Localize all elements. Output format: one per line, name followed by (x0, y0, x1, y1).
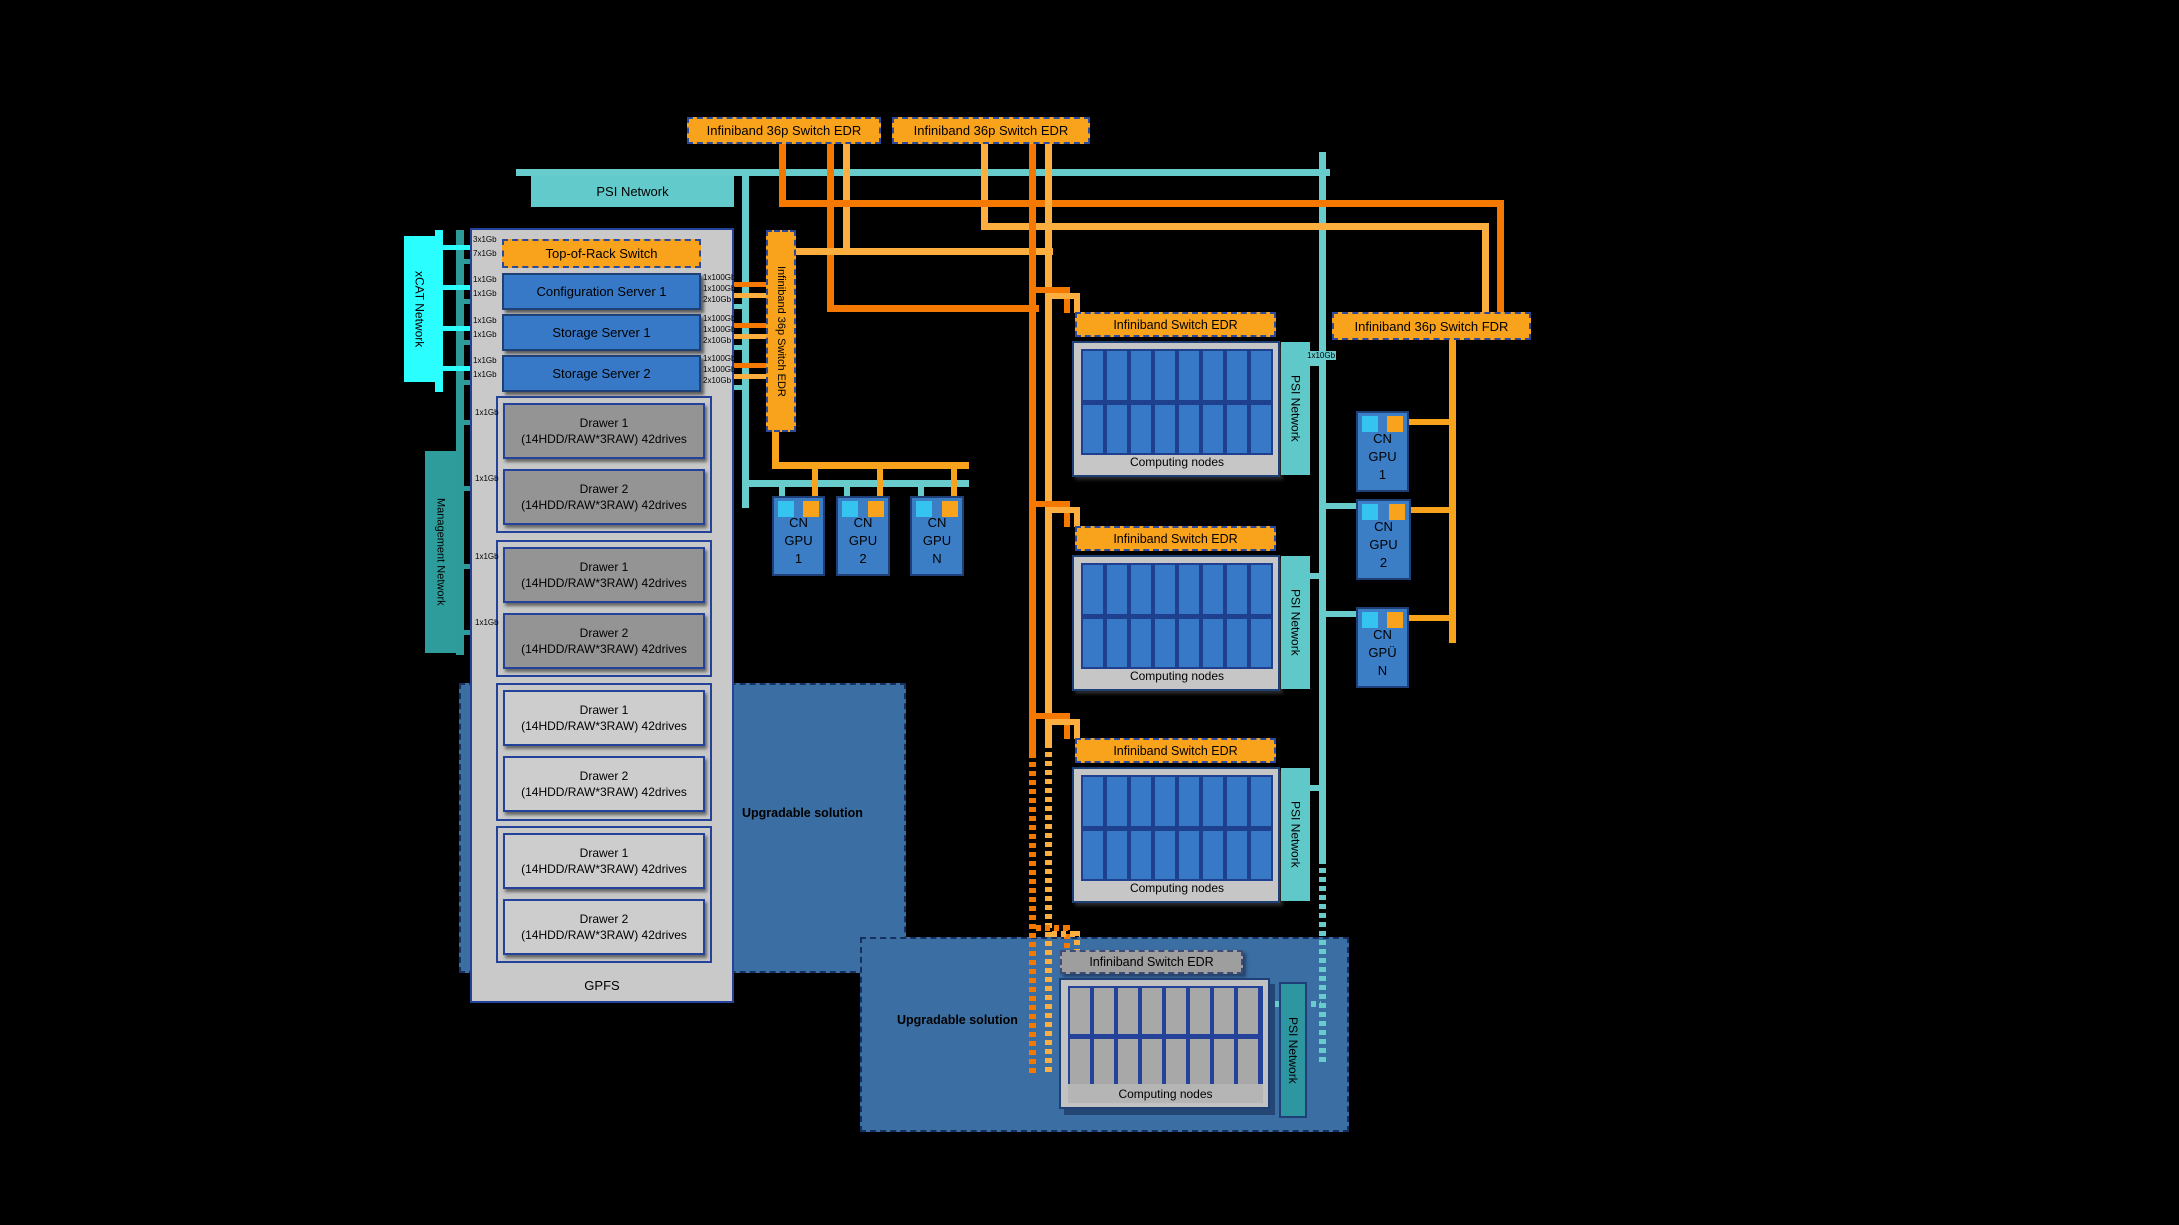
ib-switch-edr-block3[interactable]: Infiniband Switch EDR (1075, 738, 1276, 763)
port-label: 1x100Gb (703, 314, 735, 323)
ib-port-icon (942, 501, 958, 517)
gpu-line: GPU (1368, 448, 1396, 466)
block2-stub-light-drop (1074, 507, 1080, 527)
drawer-title: Drawer 2 (580, 911, 629, 927)
psi-port-icon (916, 501, 932, 517)
port-label: 2x10Gb (703, 336, 731, 345)
fdr-stub-rgpu1 (1404, 419, 1449, 425)
block3-stub-light-drop (1074, 719, 1080, 739)
infiniband-switch-top-1[interactable]: Infiniband 36p Switch EDR (687, 117, 881, 144)
port-label: 1x1Gb (475, 618, 499, 627)
management-bus (456, 230, 464, 655)
gpu-line: 2 (1380, 554, 1387, 572)
block3-stub-dark-drop (1064, 713, 1070, 739)
gpu-line: CN (1374, 518, 1393, 536)
compute-block-4: Computing nodes (1059, 978, 1270, 1109)
sw1-drop-3 (843, 143, 850, 255)
gpu-line: GPÜ (1368, 644, 1396, 662)
drawer-subtitle: (14HDD/RAW*3RAW) 42drives (521, 575, 687, 591)
drawer-2-2[interactable]: Drawer 2 (14HDD/RAW*3RAW) 42drives (503, 613, 705, 669)
cn-gpu-2-left[interactable]: CN GPU 2 (836, 496, 890, 576)
drawer-3-2[interactable]: Drawer 2 (14HDD/RAW*3RAW) 42drives (503, 756, 705, 812)
ib-port-icon (868, 501, 884, 517)
ib-port-icon (1387, 612, 1403, 628)
psi-port-icon (842, 501, 858, 517)
gpu-line: GPU (923, 532, 951, 550)
storage-server-2[interactable]: Storage Server 2 (502, 355, 701, 392)
gpu-line: CN (1373, 626, 1392, 644)
ib-switch-edr-block2[interactable]: Infiniband Switch EDR (1075, 526, 1276, 551)
port-label: 2x10Gb (703, 295, 731, 304)
gpu-line: N (932, 550, 941, 568)
drawer-2-1[interactable]: Drawer 1 (14HDD/RAW*3RAW) 42drives (503, 547, 705, 603)
drawer-subtitle: (14HDD/RAW*3RAW) 42drives (521, 497, 687, 513)
port-label: 1x100Gb (703, 354, 735, 363)
fdr-gpu-trunk (1449, 338, 1456, 643)
cn-gpu-1-left[interactable]: CN GPU 1 (772, 496, 825, 576)
cn-gpu-n-right[interactable]: CN GPÜ N (1356, 607, 1409, 688)
sw1-drop-2 (827, 143, 834, 311)
psi-network-block2: PSI Network (1281, 556, 1310, 689)
ib-port-icon (1387, 416, 1403, 432)
gpu-line: 1 (1379, 466, 1386, 484)
psi-stub-port-label: 1x10Gb (1306, 351, 1336, 360)
drawer-1-2[interactable]: Drawer 2 (14HDD/RAW*3RAW) 42drives (503, 469, 705, 525)
port-label: 1x100Gb (703, 365, 735, 374)
orange-drop-gpu2 (877, 469, 883, 497)
compute-trunk-dark (1029, 143, 1036, 753)
port-label: 1x100Gb (703, 325, 735, 334)
drawer-title: Drawer 2 (580, 481, 629, 497)
drawer-4-2[interactable]: Drawer 2 (14HDD/RAW*3RAW) 42drives (503, 899, 705, 955)
computing-nodes-label: Computing nodes (1068, 1084, 1263, 1103)
infiniband-switch-top-2[interactable]: Infiniband 36p Switch EDR (892, 117, 1090, 144)
gpu-line: 1 (795, 550, 802, 568)
psi-stub-block3 (1308, 785, 1322, 791)
fdr-feed-drop-1 (1497, 200, 1504, 315)
psi-drop-right (1319, 152, 1326, 859)
compute-block-3: Computing nodes (1072, 767, 1280, 903)
compute-block-1: Computing nodes (1072, 341, 1280, 477)
compute-trunk-light-dashed (1045, 743, 1052, 1075)
gpu-line: N (1378, 662, 1387, 680)
gpu-line: CN (1373, 430, 1392, 448)
psi-port-icon (778, 501, 794, 517)
gpfs-label: GPFS (470, 972, 734, 998)
drawer-subtitle: (14HDD/RAW*3RAW) 42drives (521, 861, 687, 877)
drawer-subtitle: (14HDD/RAW*3RAW) 42drives (521, 718, 687, 734)
drawer-subtitle: (14HDD/RAW*3RAW) 42drives (521, 784, 687, 800)
teal-stub-rgpun (1326, 611, 1360, 617)
port-label: 1x1Gb (473, 356, 497, 365)
sw1-east-line (827, 305, 1039, 312)
drawer-3-1[interactable]: Drawer 1 (14HDD/RAW*3RAW) 42drives (503, 690, 705, 746)
management-network-box: Management Network (425, 451, 456, 653)
psi-port-icon (1362, 416, 1378, 432)
block4-stub-light-drop (1074, 931, 1080, 951)
drawer-subtitle: (14HDD/RAW*3RAW) 42drives (521, 927, 687, 943)
fdr-feed-drop-2 (1482, 223, 1489, 315)
storage-server-1[interactable]: Storage Server 1 (502, 314, 701, 351)
compute-node-grid (1068, 986, 1263, 1086)
compute-node-grid (1081, 563, 1273, 669)
cn-gpu-n-left[interactable]: CN GPU N (910, 496, 964, 576)
drawer-title: Drawer 1 (580, 845, 629, 861)
gpu-line: GPU (1369, 536, 1397, 554)
gpu-line: 2 (859, 550, 866, 568)
vswitch-east-line (795, 248, 1053, 255)
edr-to-fdr-line-2 (981, 223, 1489, 230)
port-label: 1x100Gb (703, 284, 735, 293)
ib-port-icon (1389, 504, 1405, 520)
psi-main-line (516, 169, 1330, 176)
sw2-drop-1 (981, 143, 988, 230)
psi-network-block3: PSI Network (1281, 768, 1310, 901)
cn-gpu-1-right[interactable]: CN GPU 1 (1356, 411, 1409, 492)
block2-stub-dark-drop (1064, 501, 1070, 527)
psi-stub-block2 (1308, 573, 1322, 579)
fdr-stub-rgpu2 (1408, 507, 1449, 513)
port-label: 1x1Gb (473, 316, 497, 325)
port-label: 1x1Gb (473, 330, 497, 339)
edr-to-fdr-line-1 (779, 200, 1504, 207)
port-label: 1x1Gb (475, 552, 499, 561)
port-label: 3x1Gb (473, 235, 497, 244)
top-of-rack-switch[interactable]: Top-of-Rack Switch (502, 239, 701, 268)
fdr-stub-rgpun (1404, 615, 1449, 621)
orange-drop-gpu1 (812, 469, 818, 497)
drawer-title: Drawer 1 (580, 702, 629, 718)
drawer-4-1[interactable]: Drawer 1 (14HDD/RAW*3RAW) 42drives (503, 833, 705, 889)
sw1-drop-1 (779, 143, 786, 205)
drawer-title: Drawer 2 (580, 625, 629, 641)
compute-node-grid (1081, 775, 1273, 881)
configuration-server-1[interactable]: Configuration Server 1 (502, 273, 701, 310)
block1-stub-light-drop (1074, 293, 1080, 313)
gpu-orange-bus (772, 462, 969, 469)
port-label: 1x1Gb (475, 474, 499, 483)
port-label: 1x100Gb (703, 273, 735, 282)
drawer-subtitle: (14HDD/RAW*3RAW) 42drives (521, 641, 687, 657)
block1-stub-dark-drop (1064, 287, 1070, 313)
ib-port-icon (803, 501, 819, 517)
block4-stub-dark-drop (1064, 925, 1070, 951)
compute-trunk-light (1045, 143, 1052, 743)
port-label: 1x1Gb (473, 289, 497, 298)
psi-network-label-box: PSI Network (531, 176, 734, 207)
psi-port-icon (1362, 504, 1378, 520)
upgradable-label-1: Upgradable solution (742, 806, 863, 820)
xcat-network-box: xCAT Network (404, 236, 435, 382)
gpu-line: GPU (849, 532, 877, 550)
port-label: 1x1Gb (475, 408, 499, 417)
psi-network-block4: PSI Network (1279, 982, 1307, 1118)
gpu-line: GPU (784, 532, 812, 550)
orange-drop-gpun (951, 469, 957, 497)
teal-stub-rgpu2 (1326, 503, 1360, 509)
compute-trunk-dark-dashed (1029, 753, 1036, 1075)
vertical-infiniband-switch[interactable]: Infiniband 36p Switch EDR (766, 230, 796, 432)
gpu-teal-bus (742, 480, 969, 487)
upgradable-label-2: Upgradable solution (897, 1013, 1018, 1027)
psi-drop-right-dashed (1319, 859, 1326, 1065)
ib-switch-edr-block4[interactable]: Infiniband Switch EDR (1060, 950, 1243, 974)
infiniband-switch-fdr[interactable]: Infiniband 36p Switch FDR (1332, 312, 1531, 340)
drawer-title: Drawer 1 (580, 415, 629, 431)
compute-node-grid (1081, 349, 1273, 455)
compute-block-2: Computing nodes (1072, 555, 1280, 691)
port-label: 1x1Gb (473, 370, 497, 379)
xcat-bus (435, 230, 443, 392)
psi-stub-block1 (1308, 360, 1322, 366)
drawer-subtitle: (14HDD/RAW*3RAW) 42drives (521, 431, 687, 447)
drawer-title: Drawer 2 (580, 768, 629, 784)
port-label: 2x10Gb (703, 376, 731, 385)
computing-nodes-label: Computing nodes (1081, 878, 1273, 897)
psi-port-icon (1362, 612, 1378, 628)
drawer-title: Drawer 1 (580, 559, 629, 575)
cn-gpu-2-right[interactable]: CN GPU 2 (1356, 499, 1411, 580)
drawer-1-1[interactable]: Drawer 1 (14HDD/RAW*3RAW) 42drives (503, 403, 705, 459)
psi-network-block1: PSI Network (1281, 342, 1310, 475)
architecture-diagram: Upgradable solution Upgradable solution … (0, 0, 2179, 1225)
computing-nodes-label: Computing nodes (1081, 666, 1273, 685)
ib-switch-edr-block1[interactable]: Infiniband Switch EDR (1075, 312, 1276, 337)
port-label: 7x1Gb (473, 249, 497, 258)
port-label: 1x1Gb (473, 275, 497, 284)
computing-nodes-label: Computing nodes (1081, 452, 1273, 471)
